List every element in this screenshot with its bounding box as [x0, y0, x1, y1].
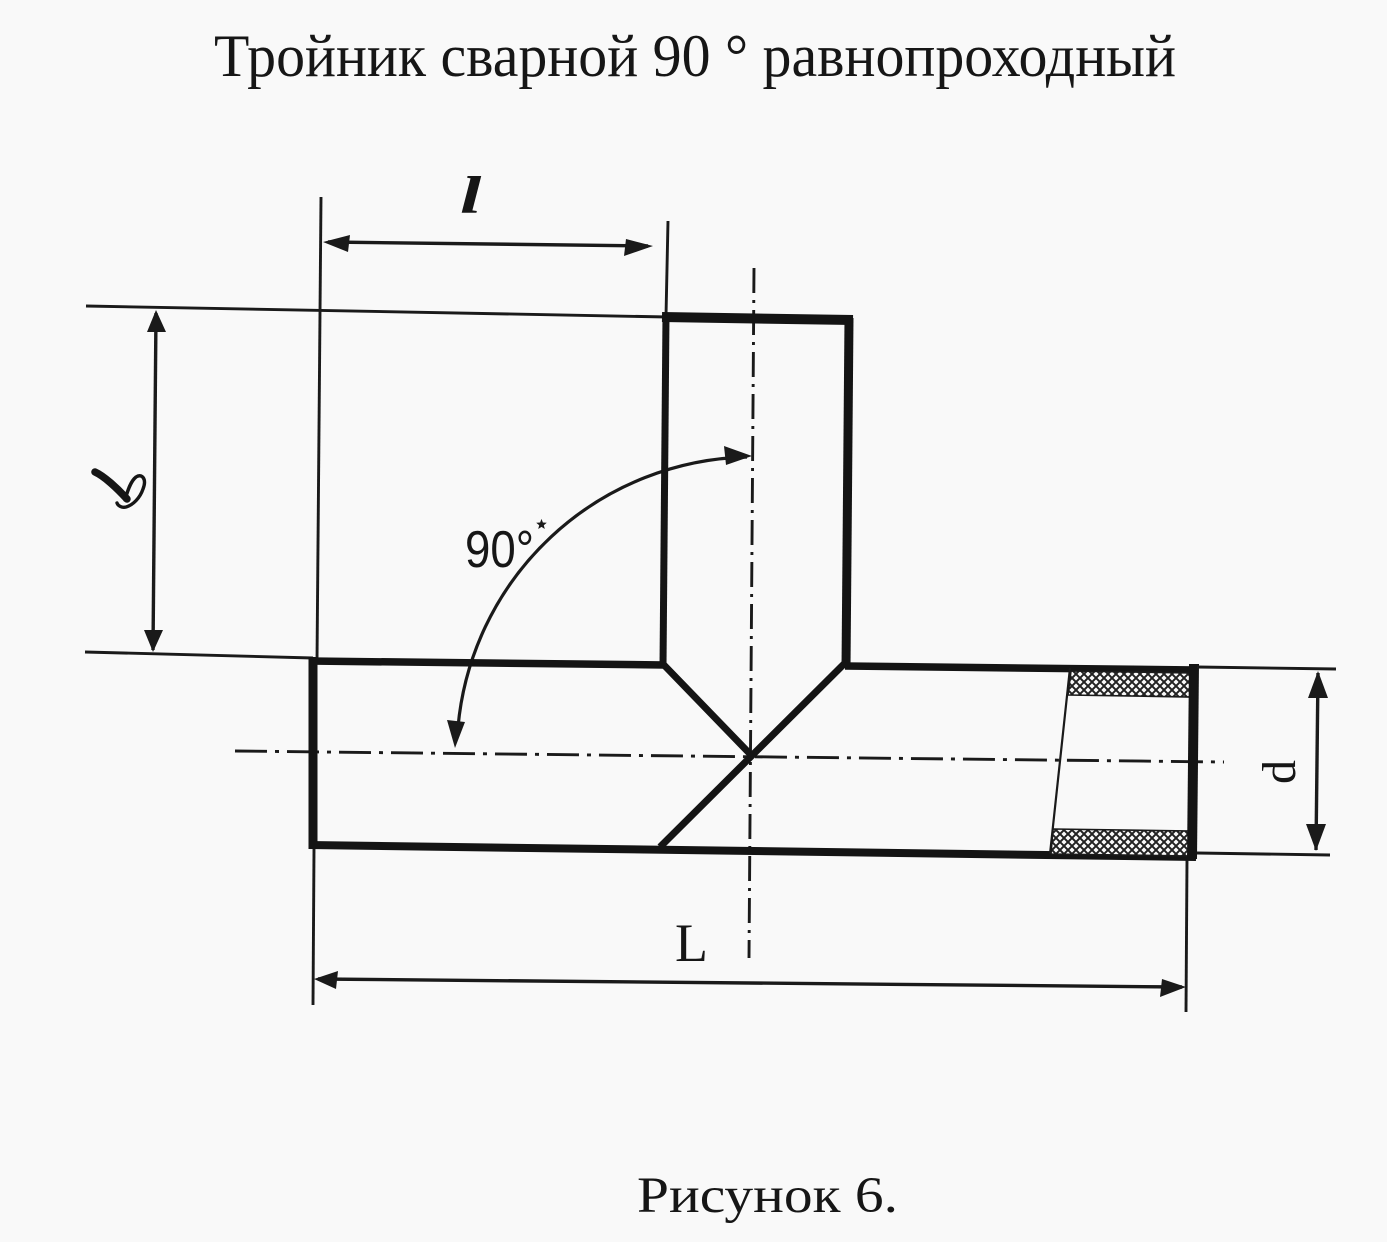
svg-text:Тройник сварной 90 ° равнопрох: Тройник сварной 90 ° равнопроходный: [214, 23, 1176, 89]
svg-text:Рисунок 6.: Рисунок 6.: [637, 1168, 898, 1224]
svg-text:90°: 90°: [465, 521, 534, 579]
svg-text:L: L: [675, 913, 708, 973]
svg-text:d: d: [1253, 760, 1306, 784]
svg-text:l: l: [460, 166, 482, 225]
